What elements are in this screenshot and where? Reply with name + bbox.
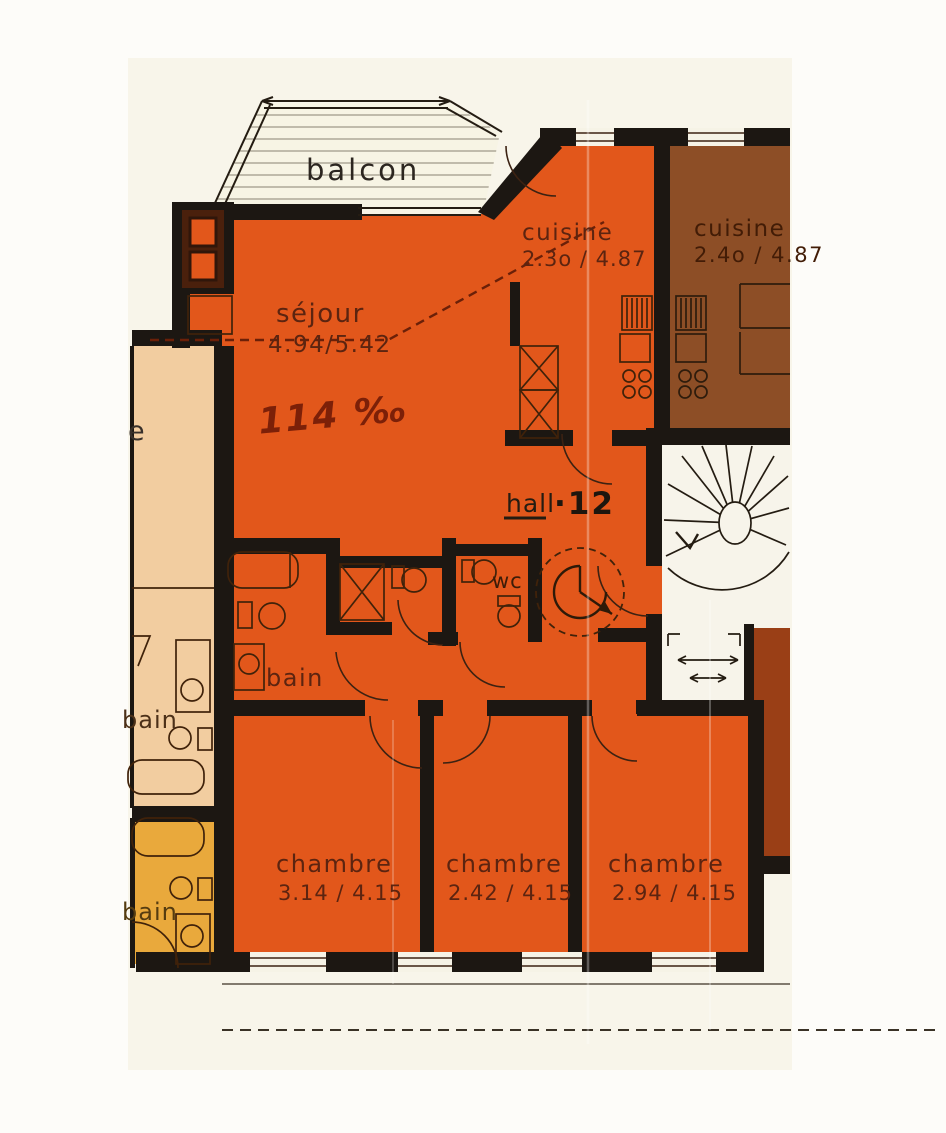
- neighbor-kitchen-label: cuisine: [694, 216, 785, 242]
- bedroom-1-label: chambre: [276, 850, 392, 878]
- living-room-label: séjour: [276, 299, 365, 329]
- bedroom-1-dims: 3.14 / 4.15: [278, 881, 403, 905]
- unit-number: ·12: [554, 486, 615, 522]
- flue-icon: [190, 218, 216, 246]
- balcony-label: balcon: [306, 153, 420, 187]
- floor-plan-sheet: balcon: [0, 0, 946, 1133]
- radiator-icon: [622, 296, 652, 330]
- neighbor-kitchen-area: [668, 144, 790, 434]
- neighbor-bathroom-left-label: bain: [122, 706, 178, 734]
- bedroom-2-dims: 2.42 / 4.15: [448, 881, 573, 905]
- window: [652, 952, 716, 972]
- bedroom-3-dims: 2.94 / 4.15: [612, 881, 737, 905]
- flue-icon: [190, 252, 216, 280]
- hall-label: hall: [506, 489, 555, 518]
- neighbor-right-room: [764, 712, 790, 858]
- neighbor-kitchen-dims: 2.4o / 4.87: [694, 243, 824, 267]
- kitchen-label: cuisine: [522, 220, 613, 246]
- living-room-dims: 4.94/5.42: [268, 332, 392, 358]
- bedroom-3-label: chambre: [608, 850, 724, 878]
- window: [576, 128, 614, 146]
- neighbor-room-partial-label: e: [128, 416, 145, 447]
- window: [250, 952, 326, 972]
- wc-label: wc: [492, 569, 523, 593]
- bathroom-label: bain: [266, 664, 324, 692]
- radiator-icon: [676, 296, 706, 330]
- window: [398, 952, 452, 972]
- kitchen-dims: 2.3o / 4.87: [522, 247, 646, 271]
- stair-center-post: [719, 502, 751, 544]
- window: [522, 952, 582, 972]
- bedroom-2-label: chambre: [446, 850, 562, 878]
- window: [688, 128, 744, 146]
- floor-plan-svg: balcon: [0, 0, 946, 1133]
- neighbor-bathroom-lower-label: bain: [122, 898, 178, 926]
- bedroom-3-extension: [648, 712, 752, 964]
- neighbor-right-upper: [754, 628, 790, 712]
